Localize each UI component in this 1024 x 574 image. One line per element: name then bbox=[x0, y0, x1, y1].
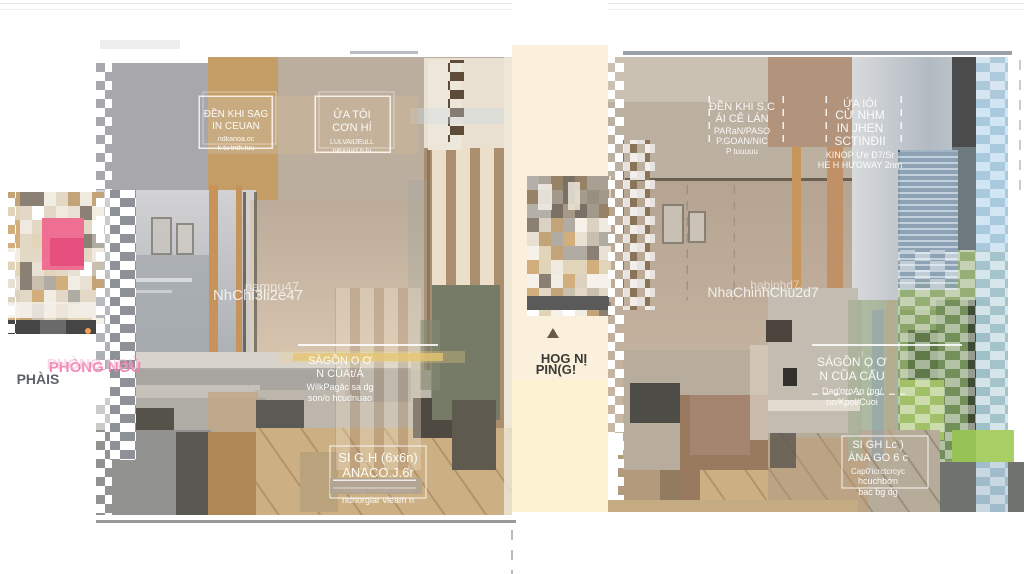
svg-text:PARaN/PASO: PARaN/PASO bbox=[714, 126, 770, 136]
svg-text:no/Kpol/Cuoi: no/Kpol/Cuoi bbox=[826, 397, 878, 407]
svg-text:ndkanoa.oc: ndkanoa.oc bbox=[218, 136, 255, 143]
svg-text:son/o hcudnuao: son/o hcudnuao bbox=[308, 393, 372, 403]
svg-text:ĐỀN KHI SẠG: ĐỀN KHI SẠG bbox=[204, 107, 269, 120]
svg-text:Cap0'icrctcrcyc: Cap0'icrctcrcyc bbox=[851, 467, 905, 476]
svg-text:ANACO.J.6r: ANACO.J.6r bbox=[342, 465, 414, 480]
svg-text:ÀNA GO 6 c: ÀNA GO 6 c bbox=[848, 451, 908, 464]
svg-text:KINOP Ưe Đ7/Sr: KINOP Ưe Đ7/Sr bbox=[826, 150, 895, 160]
svg-text:hcuchbớn: hcuchbớn bbox=[858, 476, 898, 486]
svg-text:namnu47: namnu47 bbox=[245, 279, 299, 294]
svg-text:PIN(G!: PIN(G! bbox=[536, 362, 576, 377]
svg-text:ÁI CÊ LÁN: ÁI CÊ LÁN bbox=[715, 112, 768, 125]
svg-text:SI GH Lc ): SI GH Lc ) bbox=[852, 439, 903, 451]
svg-text:habinhd7: habinhd7 bbox=[750, 278, 800, 292]
svg-text:SCTINĐII: SCTINĐII bbox=[834, 134, 885, 148]
svg-text:PHÒNG NGỦ: PHÒNG NGỦ bbox=[47, 355, 140, 373]
svg-text:CỬ NHM: CỬ NHM bbox=[835, 107, 885, 122]
svg-text:LULVAllJEuLL: LULVAllJEuLL bbox=[330, 139, 374, 146]
svg-text:P.GOAN/NIC: P.GOAN/NIC bbox=[716, 136, 768, 146]
svg-text:PHÀIS: PHÀIS bbox=[17, 371, 60, 387]
svg-text:ndnorgiar vieam n: ndnorgiar vieam n bbox=[342, 495, 414, 505]
svg-text:SI G.H (6x6n): SI G.H (6x6n) bbox=[338, 450, 417, 465]
svg-text:N CŨA CẤU: N CŨA CẤU bbox=[819, 368, 884, 383]
svg-text:WilkPagăc sa dg: WilkPagăc sa dg bbox=[306, 382, 373, 392]
svg-text:Dag'oroAn (ng/: Dag'oroAn (ng/ bbox=[822, 386, 883, 396]
svg-text:IN CEUAN: IN CEUAN bbox=[212, 121, 260, 132]
svg-text:SÁGỒN Ọ Ơ: SÁGỒN Ọ Ơ bbox=[817, 354, 887, 369]
svg-text:k tu tnth.tuu: k tu tnth.tuu bbox=[218, 145, 255, 152]
svg-text:ĐỀN KHI S.C: ĐỀN KHI S.C bbox=[709, 100, 775, 113]
svg-text:ỬA TÔI: ỬA TÔI bbox=[333, 108, 370, 121]
svg-text:SÀGỒN Ọ Ơ: SÀGỒN Ọ Ơ bbox=[308, 354, 372, 367]
svg-text:HE H HƯOWAY 2nm: HE H HƯOWAY 2nm bbox=[818, 160, 903, 170]
svg-text:N CŨAt/Á: N CŨAt/Á bbox=[316, 367, 364, 380]
svg-text:nituưucLh lu: nituưucLh lu bbox=[333, 148, 372, 155]
svg-text:P tuuuuu: P tuuuuu bbox=[726, 147, 758, 156]
svg-text:CƠN HÍ: CƠN HÍ bbox=[332, 121, 372, 134]
svg-text:IN JHEN: IN JHEN bbox=[837, 121, 884, 135]
svg-text:bac bg dg: bac bg dg bbox=[858, 487, 898, 497]
